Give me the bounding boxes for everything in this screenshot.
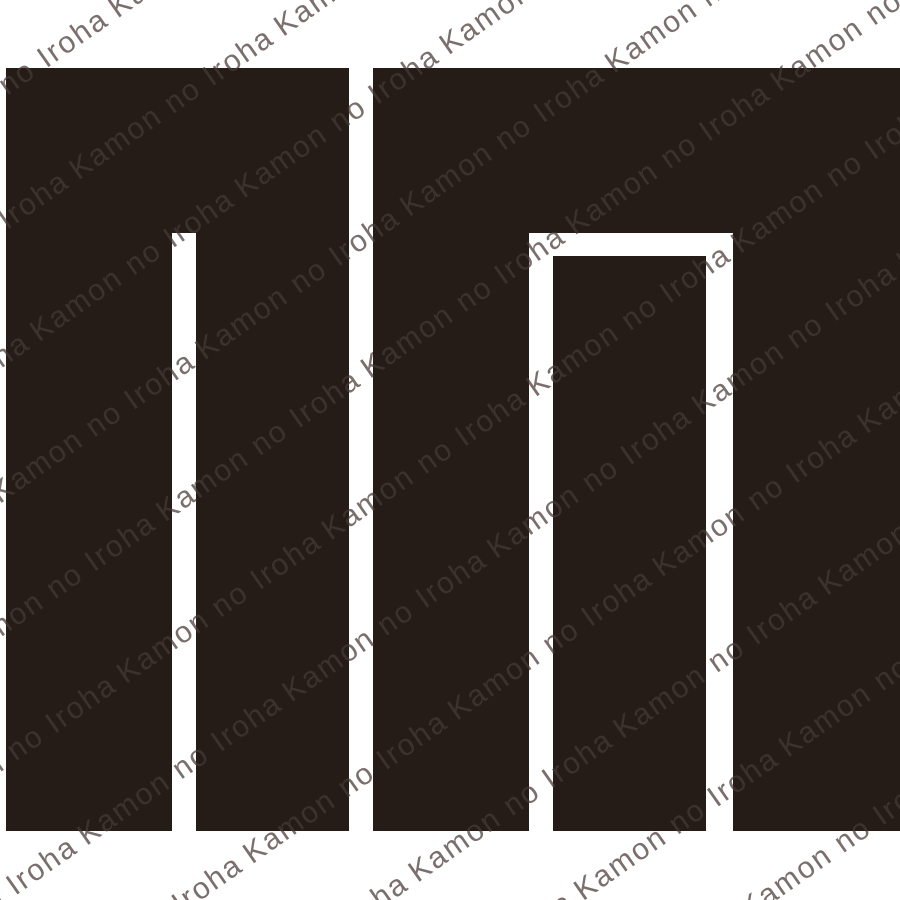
- crest-left-gate-left-leg: [6, 233, 172, 831]
- watermark-text: Kamon no Iroha: [363, 885, 580, 900]
- watermark-text: Kamon no Iroha: [32, 848, 249, 900]
- crest-right-gate-top-band: [373, 68, 900, 233]
- watermark-text: Kamon no Iroha: [0, 830, 84, 900]
- watermark-text: Kamon no Iroha: [434, 0, 651, 62]
- crest-right-gate-inner-bar: [553, 256, 706, 831]
- watermark-text: Kamon no Iroha: [268, 0, 485, 44]
- watermark-text: Kamon no Iroha: [0, 0, 154, 7]
- watermark-text: Kamon no Iroha: [198, 867, 415, 900]
- crest-right-gate-right-leg: [733, 233, 900, 831]
- crest-left-gate-right-leg: [196, 233, 349, 831]
- watermark-text: Kamon no Iroha: [103, 0, 320, 25]
- crest-image: Kamon no IrohaKamon no IrohaKamon no Iro…: [0, 0, 900, 900]
- crest-right-gate-left-leg: [373, 233, 529, 831]
- watermark-text: Kamon no Iroha: [268, 0, 485, 44]
- watermark-text: Kamon no Iroha: [0, 830, 84, 900]
- watermark-text: Kamon no Iroha: [363, 885, 580, 900]
- watermark-text: Kamon no Iroha: [103, 0, 320, 25]
- crest-left-gate-top-band: [6, 68, 349, 233]
- watermark-text: Kamon no Iroha: [434, 0, 651, 62]
- watermark-text: Kamon no Iroha: [32, 848, 249, 900]
- watermark-text: Kamon no Iroha: [198, 867, 415, 900]
- watermark-text: Kamon no Iroha: [0, 0, 154, 7]
